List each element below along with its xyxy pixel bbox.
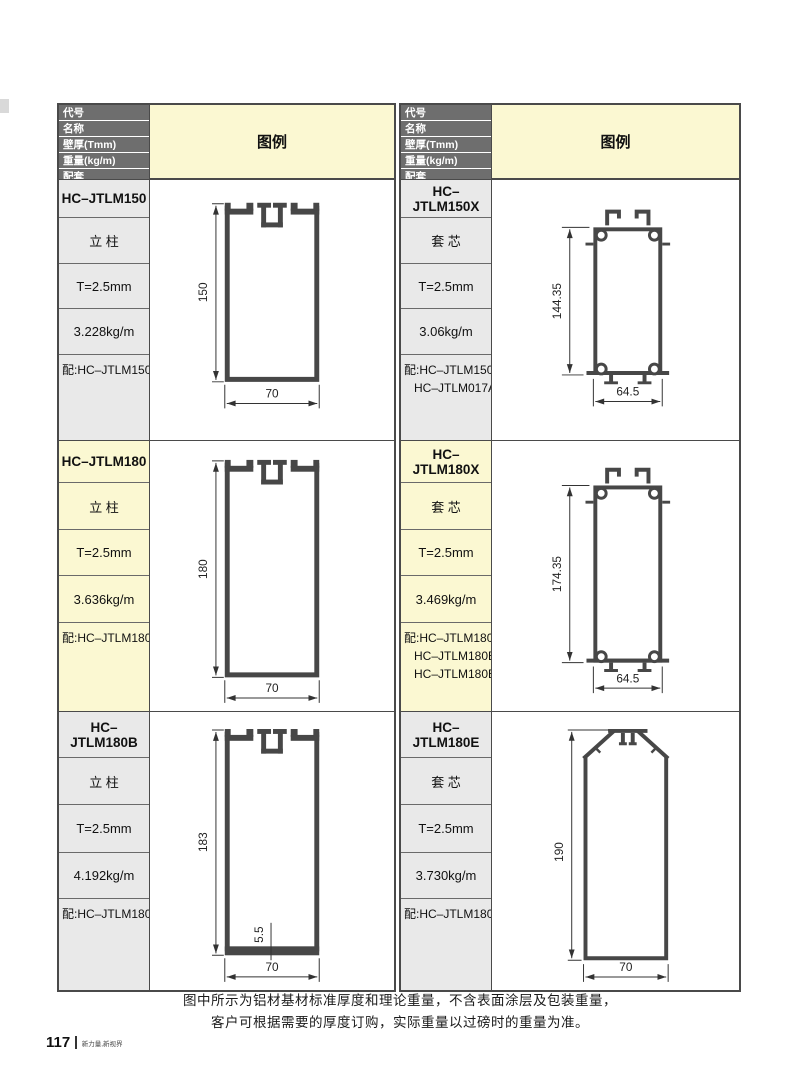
height-dimension-label: 190 [551,842,565,862]
profile-drawing-hc-jtlm180: 180 70 [151,441,394,711]
profile-info-hc-jtlm150: HC–JTLM150 立 柱 T=2.5mm 3.228kg/m 配:HC–JT… [59,180,149,440]
profile-name: 套 芯 [401,218,491,264]
profile-weight: 3.06kg/m [401,309,491,355]
profile-info-hc-jtlm180: HC–JTLM180 立 柱 T=2.5mm 3.636kg/m 配:HC–JT… [59,441,149,711]
footnote: 图中所示为铝材基材标准厚度和理论重量，不含表面涂层及包装重量， 客户可根据需要的… [0,990,800,1033]
profile-table-left: 代号 名称 壁厚(Tmm) 重量(kg/m) 配套 图例 HC–JTLM150 … [57,103,396,992]
profile-name: 立 柱 [59,218,149,264]
profile-code: HC–JTLM180E [401,712,491,758]
dimension-lines: 190 70 [551,730,667,982]
footer-divider [75,1036,77,1049]
profile-tables: 代号 名称 壁厚(Tmm) 重量(kg/m) 配套 图例 HC–JTLM150 … [57,103,741,992]
table-row: HC–JTLM180E 套 芯 T=2.5mm 3.730kg/m 配:HC–J… [401,711,739,990]
header-row-name: 名称 [59,121,149,137]
drawing-cell: 190 70 [491,712,739,990]
header-row-code: 代号 [59,105,149,121]
table-row: HC–JTLM150 立 柱 T=2.5mm 3.228kg/m 配:HC–JT… [59,179,394,440]
header-row-thickness: 壁厚(Tmm) [401,137,491,153]
profile-match: 配:HC–JTLM180 HC–JTLM180B HC–JTLM180E [401,623,491,711]
profile-drawing-hc-jtlm150: 150 70 [151,180,394,440]
table-row: HC–JTLM180X 套 芯 T=2.5mm 3.469kg/m 配:HC–J… [401,440,739,711]
profile-weight: 4.192kg/m [59,853,149,899]
width-dimension-label: 64.5 [616,671,639,685]
profile-outline [583,731,668,958]
profile-match: 配:HC–JTLM180X [59,899,149,990]
header-row-weight: 重量(kg/m) [59,153,149,169]
catalog-page: 代号 名称 壁厚(Tmm) 重量(kg/m) 配套 图例 HC–JTLM150 … [0,0,800,1085]
profile-name: 套 芯 [401,758,491,805]
drawing-cell: 150 70 [149,180,394,440]
profile-code: HC–JTLM150X [401,180,491,218]
bottom-bar-dimension-label: 5.5 [252,926,266,943]
legend-header: 图例 [491,105,739,178]
profile-outline [224,729,318,955]
profile-match: 配:HC–JTLM180X [401,899,491,990]
legend-header: 图例 [149,105,394,178]
header-label-column: 代号 名称 壁厚(Tmm) 重量(kg/m) 配套 [401,105,491,178]
profile-outline [224,203,318,380]
profile-weight: 3.228kg/m [59,309,149,355]
profile-code: HC–JTLM180B [59,712,149,758]
profile-name: 立 柱 [59,758,149,805]
profile-table-right: 代号 名称 壁厚(Tmm) 重量(kg/m) 配套 图例 HC–JTLM150X… [399,103,741,992]
profile-weight: 3.636kg/m [59,576,149,623]
table-row: HC–JTLM150X 套 芯 T=2.5mm 3.06kg/m 配:HC–JT… [401,179,739,440]
height-dimension-label: 183 [196,832,210,852]
height-dimension-label: 174.35 [549,556,563,593]
profile-thickness: T=2.5mm [401,264,491,309]
height-dimension-label: 144.35 [549,283,563,320]
width-dimension-label: 64.5 [616,385,639,399]
profile-info-hc-jtlm150x: HC–JTLM150X 套 芯 T=2.5mm 3.06kg/m 配:HC–JT… [401,180,491,440]
table-row: HC–JTLM180 立 柱 T=2.5mm 3.636kg/m 配:HC–JT… [59,440,394,711]
width-dimension-label: 70 [265,387,279,401]
footnote-line-1: 图中所示为铝材基材标准厚度和理论重量，不含表面涂层及包装重量， [0,990,800,1012]
profile-info-hc-jtlm180x: HC–JTLM180X 套 芯 T=2.5mm 3.469kg/m 配:HC–J… [401,441,491,711]
height-dimension-label: 150 [196,282,210,302]
profile-weight: 3.730kg/m [401,853,491,899]
profile-drawing-hc-jtlm180e: 190 70 [493,712,739,990]
profile-outline [585,470,670,672]
table-header-right: 代号 名称 壁厚(Tmm) 重量(kg/m) 配套 图例 [401,105,739,179]
profile-thickness: T=2.5mm [59,805,149,853]
width-dimension-label: 70 [619,960,633,974]
drawing-cell: 180 70 [149,441,394,711]
page-footer: 117 新力量,新视界 [46,1034,123,1051]
profile-code: HC–JTLM150 [59,180,149,218]
dimension-lines: 180 70 [196,461,319,703]
page-number: 117 [46,1034,70,1051]
header-row-name: 名称 [401,121,491,137]
profile-code: HC–JTLM180X [401,441,491,483]
width-dimension-label: 70 [265,681,279,695]
profile-info-hc-jtlm180e: HC–JTLM180E 套 芯 T=2.5mm 3.730kg/m 配:HC–J… [401,712,491,990]
profile-thickness: T=2.5mm [59,264,149,309]
profile-info-hc-jtlm180b: HC–JTLM180B 立 柱 T=2.5mm 4.192kg/m 配:HC–J… [59,712,149,990]
header-label-column: 代号 名称 壁厚(Tmm) 重量(kg/m) 配套 [59,105,149,178]
table-row: HC–JTLM180B 立 柱 T=2.5mm 4.192kg/m 配:HC–J… [59,711,394,990]
footer-tagline: 新力量,新视界 [82,1038,123,1048]
profile-outline [585,212,670,384]
profile-match: 配:HC–JTLM150X [59,355,149,440]
profile-match: 配:HC–JTLM150 HC–JTLM017A [401,355,491,440]
drawing-cell: 144.35 64.5 [491,180,739,440]
width-dimension-label: 70 [265,960,279,974]
drawing-cell: 174.35 64.5 [491,441,739,711]
header-row-thickness: 壁厚(Tmm) [59,137,149,153]
header-row-code: 代号 [401,105,491,121]
profile-code: HC–JTLM180 [59,441,149,483]
dimension-lines: 183 5.5 70 [196,730,319,982]
profile-outline [224,460,318,675]
profile-match: 配:HC–JTLM180X [59,623,149,711]
profile-weight: 3.469kg/m [401,576,491,623]
profile-thickness: T=2.5mm [401,805,491,853]
profile-name: 套 芯 [401,483,491,530]
drawing-cell: 183 5.5 70 [149,712,394,990]
profile-thickness: T=2.5mm [401,530,491,576]
footnote-line-2: 客户可根据需要的厚度订购，实际重量以过磅时的重量为准。 [0,1012,800,1034]
profile-thickness: T=2.5mm [59,530,149,576]
profile-drawing-hc-jtlm150x: 144.35 64.5 [493,180,739,440]
table-header-left: 代号 名称 壁厚(Tmm) 重量(kg/m) 配套 图例 [59,105,394,179]
profile-name: 立 柱 [59,483,149,530]
profile-drawing-hc-jtlm180b: 183 5.5 70 [151,712,394,990]
header-row-weight: 重量(kg/m) [401,153,491,169]
binding-mark [0,99,9,113]
profile-drawing-hc-jtlm180x: 174.35 64.5 [493,441,739,711]
height-dimension-label: 180 [196,559,210,579]
